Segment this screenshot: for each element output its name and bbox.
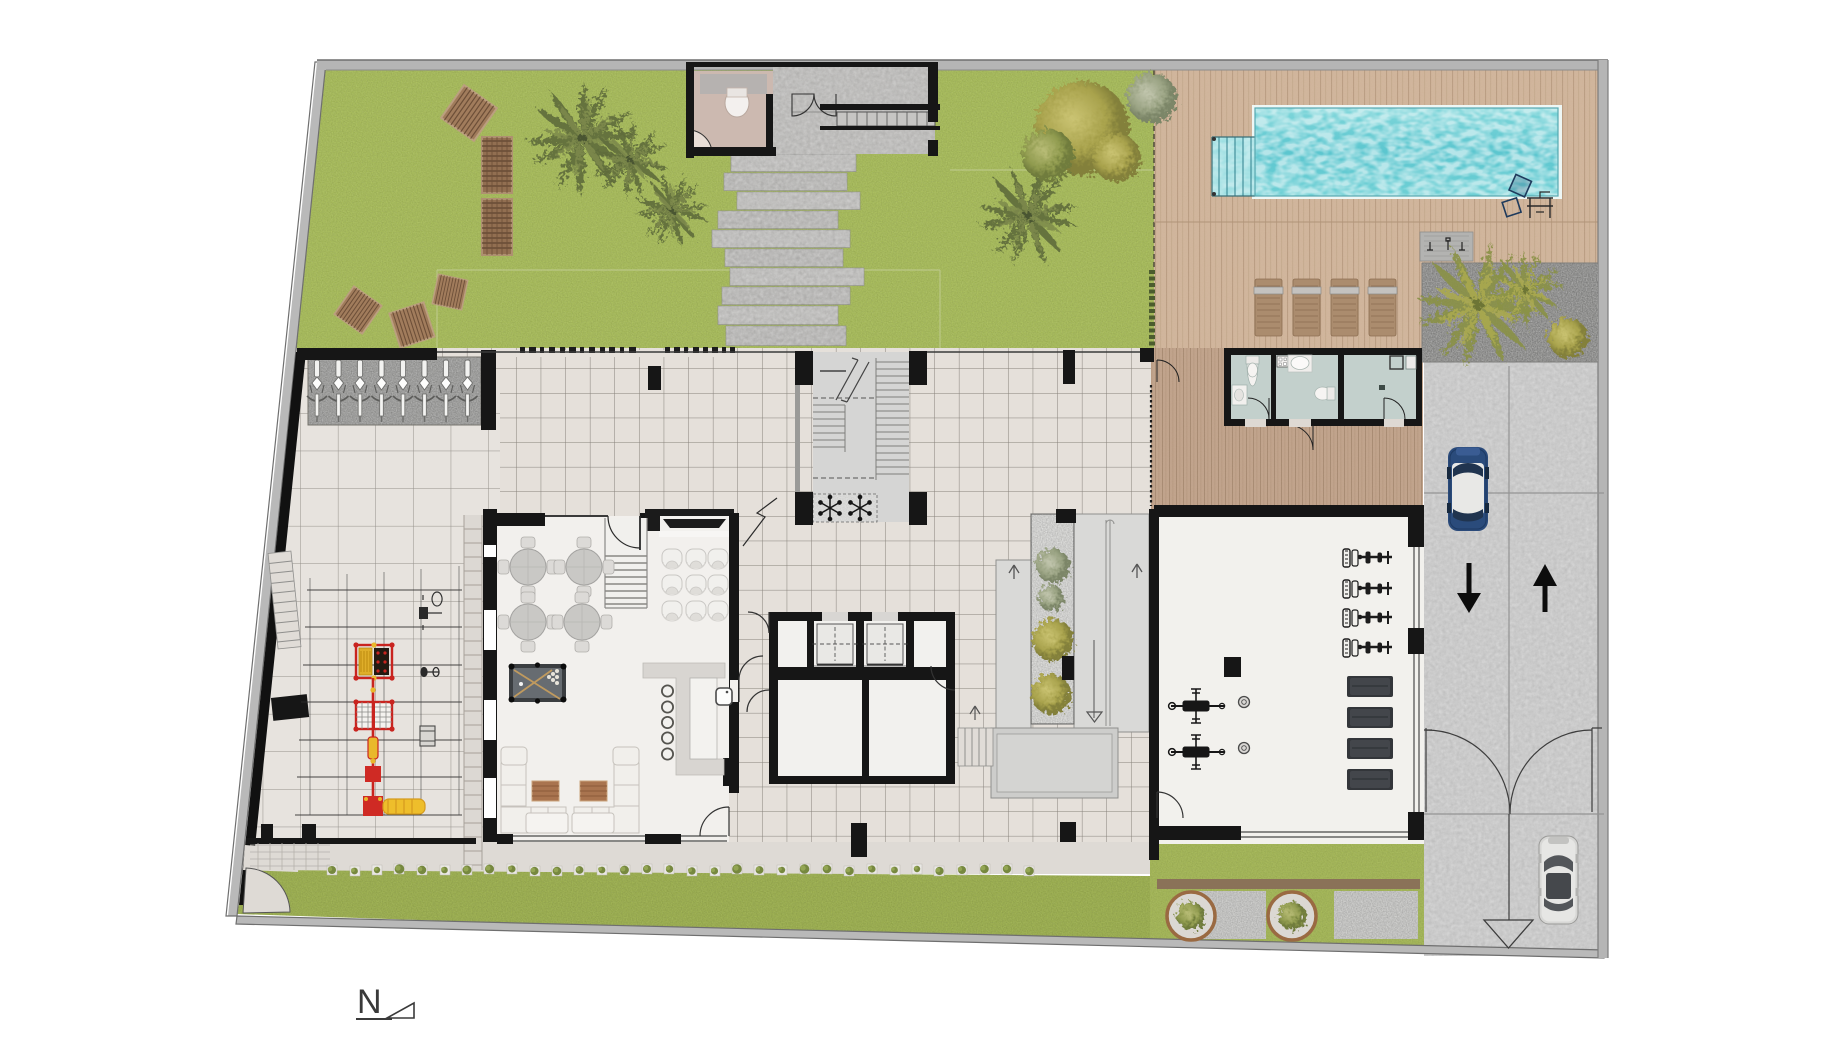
- svg-text:N: N: [357, 983, 382, 1021]
